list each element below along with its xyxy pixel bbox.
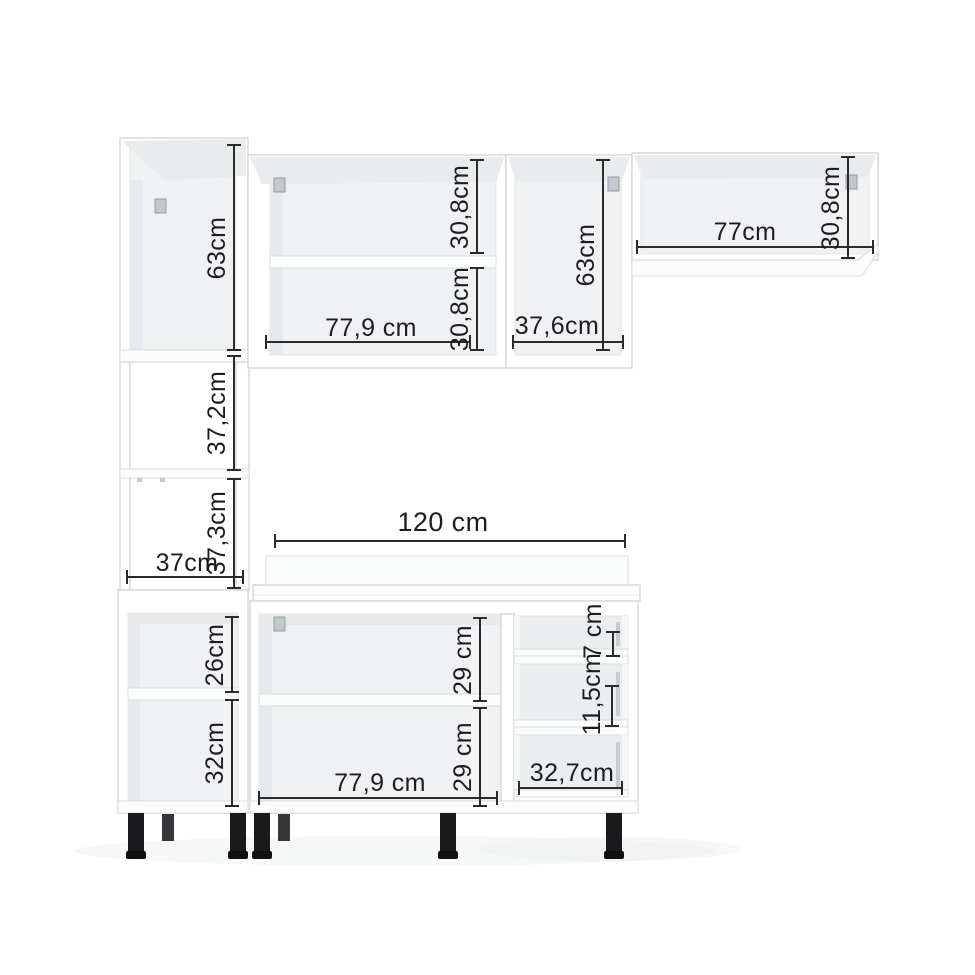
dim-label-drawer-middle-height: 11,5cm [578,653,606,736]
cabinet-front-leg [438,813,458,859]
dim-label-tower-upper-height: 63cm [203,217,231,280]
drawer-divider-2 [514,727,628,735]
dim-label-base-tower-upper: 26cm [201,624,229,687]
dim-label-drawer-top-height: 7 cm [579,603,607,659]
cabinet-rear-leg [278,814,290,841]
drawer-top-front-rail [514,649,628,656]
hinge-icon [608,177,619,191]
cabinet-front-leg [228,813,248,859]
base-tower-shelf [128,688,238,700]
cabinet-rear-leg [162,814,174,841]
tall-cabinet-upper-side-shade [130,180,143,351]
dim-label-base-tower-lower: 32cm [201,722,229,785]
base-tower-top-shade [128,613,238,624]
wall-cabinet-left-side-shade [270,184,283,355]
dim-label-wall-shelf-height: 30,8cm [817,166,845,250]
hinge-icon [274,178,285,192]
hinge-icon [155,199,166,213]
drawer-slide-icon [616,622,620,646]
countertop [253,585,640,601]
drawer-middle-left-rail [514,664,520,727]
cabinet-front-leg [604,813,624,859]
base-cabinet-bottom-panel [250,801,638,813]
base-cabinet-divider [501,614,514,804]
base-cabinet-side-shade [259,625,272,804]
drawer-slide-icon [616,672,620,716]
product-dimension-diagram: 63cm 37,2cm 37,3cm 37cm 77,9 cm 30,8cm 3… [0,0,975,975]
dim-label-wall-cabinet-left-width: 77,9 cm [325,314,417,342]
dim-label-tower-niche-upper: 37,2cm [203,371,231,455]
drawer-middle-right-rail [622,664,628,727]
dim-label-base-cabinet-upper: 29 cm [449,625,477,695]
shelf-pin-icon [160,478,165,482]
diagram-canvas: 63cm 37,2cm 37,3cm 37cm 77,9 cm 30,8cm 3… [0,0,975,975]
dim-label-wall-left-lower: 30,8cm [446,267,474,351]
hinge-icon [274,617,285,631]
floor-shadow [75,836,740,866]
dim-label-wall-middle-height: 63cm [572,224,600,287]
drawer-slide-icon [616,742,620,788]
drawer-bottom-front-rail [514,790,628,797]
drawer-middle-opening [514,664,628,727]
dim-counter-width: 120 cm [275,507,625,548]
base-cabinet-top-shade [259,614,501,625]
dim-label-tower-width: 37cm [156,549,219,577]
dim-label-wall-shelf-width: 77cm [714,218,777,246]
cabinet-front-leg [252,813,272,859]
dim-label-counter-width: 120 cm [398,507,489,537]
dim-label-wall-left-upper: 30,8cm [446,165,474,249]
dim-label-drawer-width: 32,7cm [530,759,614,787]
dim-label-wall-middle-width: 37,6cm [515,312,599,340]
dim-label-base-cabinet-width: 77,9 cm [334,769,426,797]
counter-assembly [253,556,640,601]
cabinet-front-leg [126,813,146,859]
wall-cabinet-left-shelf [270,256,496,268]
dim-label-base-cabinet-lower: 29 cm [449,722,477,792]
base-tower-side-shade [128,624,140,803]
drawer-divider-1 [514,656,628,664]
shelf-pin-icon [137,478,142,482]
backsplash [266,556,628,587]
